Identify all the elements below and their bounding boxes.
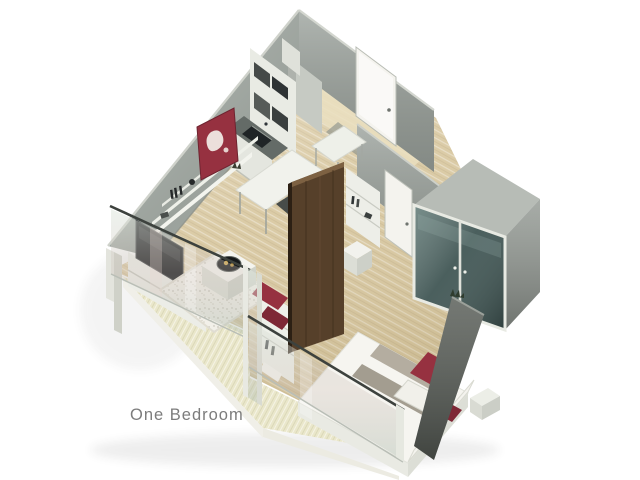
- faucet: [264, 122, 267, 125]
- interior-door-handle: [405, 222, 408, 225]
- railing-end-post: [396, 404, 404, 462]
- walnut-partition: [288, 162, 344, 354]
- door-handle: [387, 108, 391, 112]
- plan-title: One Bedroom: [130, 406, 244, 424]
- apartment-render: One Bedroom: [0, 0, 640, 480]
- floorplan-screenshot: One Bedroom: [0, 0, 640, 480]
